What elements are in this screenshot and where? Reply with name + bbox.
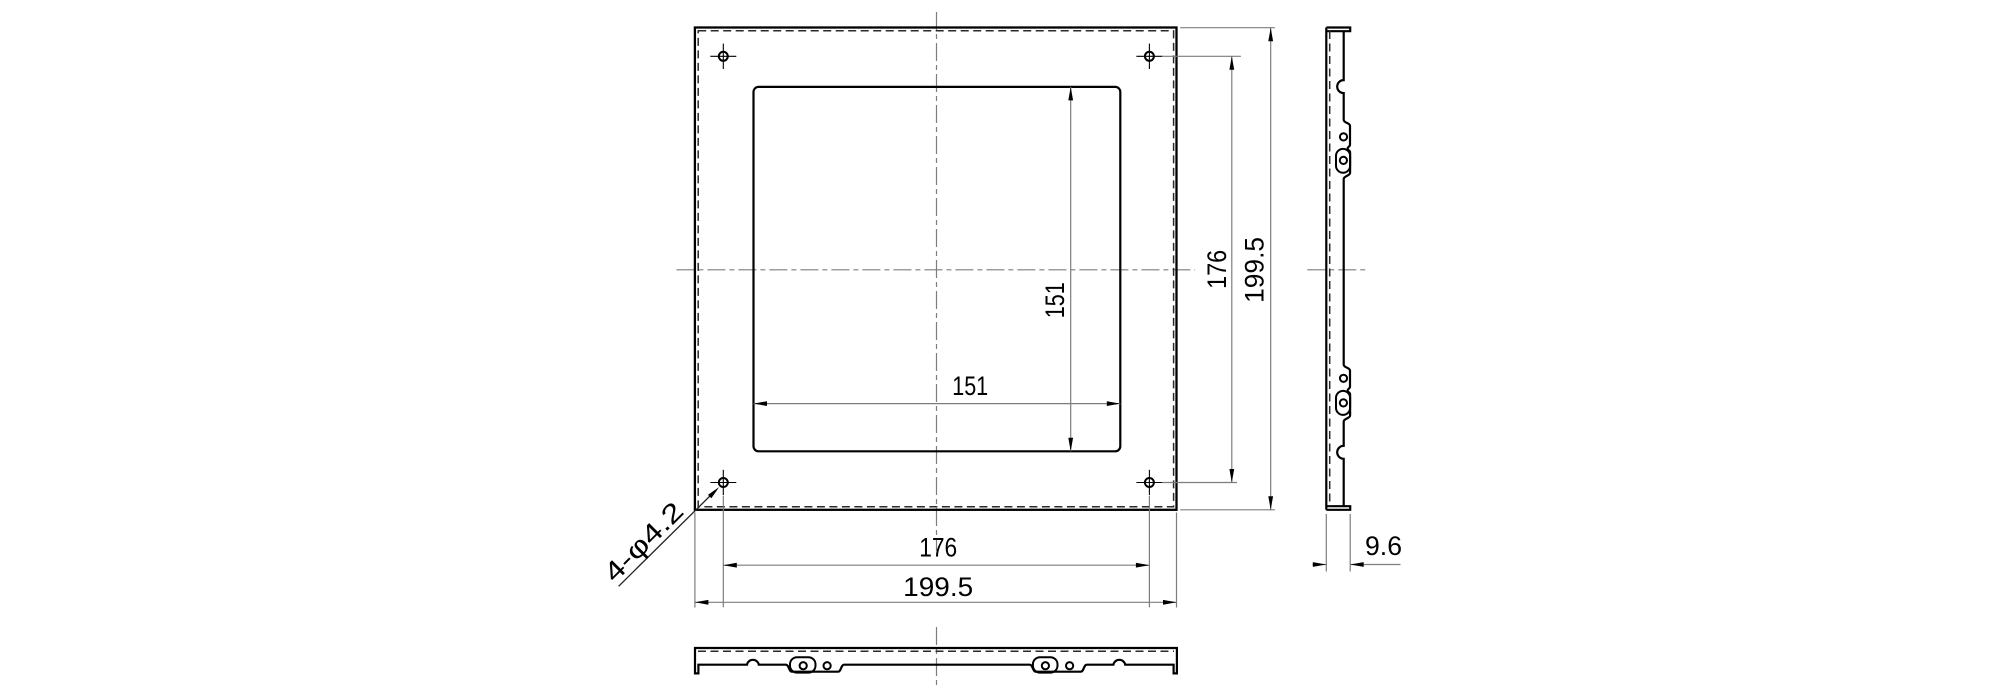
- svg-text:151: 151: [1040, 282, 1070, 318]
- svg-text:176: 176: [919, 533, 957, 563]
- svg-text:9.6: 9.6: [1365, 531, 1402, 561]
- svg-text:151: 151: [952, 371, 988, 401]
- svg-text:176: 176: [1202, 250, 1232, 289]
- svg-text:199.5: 199.5: [1239, 237, 1269, 303]
- svg-text:199.5: 199.5: [903, 572, 973, 602]
